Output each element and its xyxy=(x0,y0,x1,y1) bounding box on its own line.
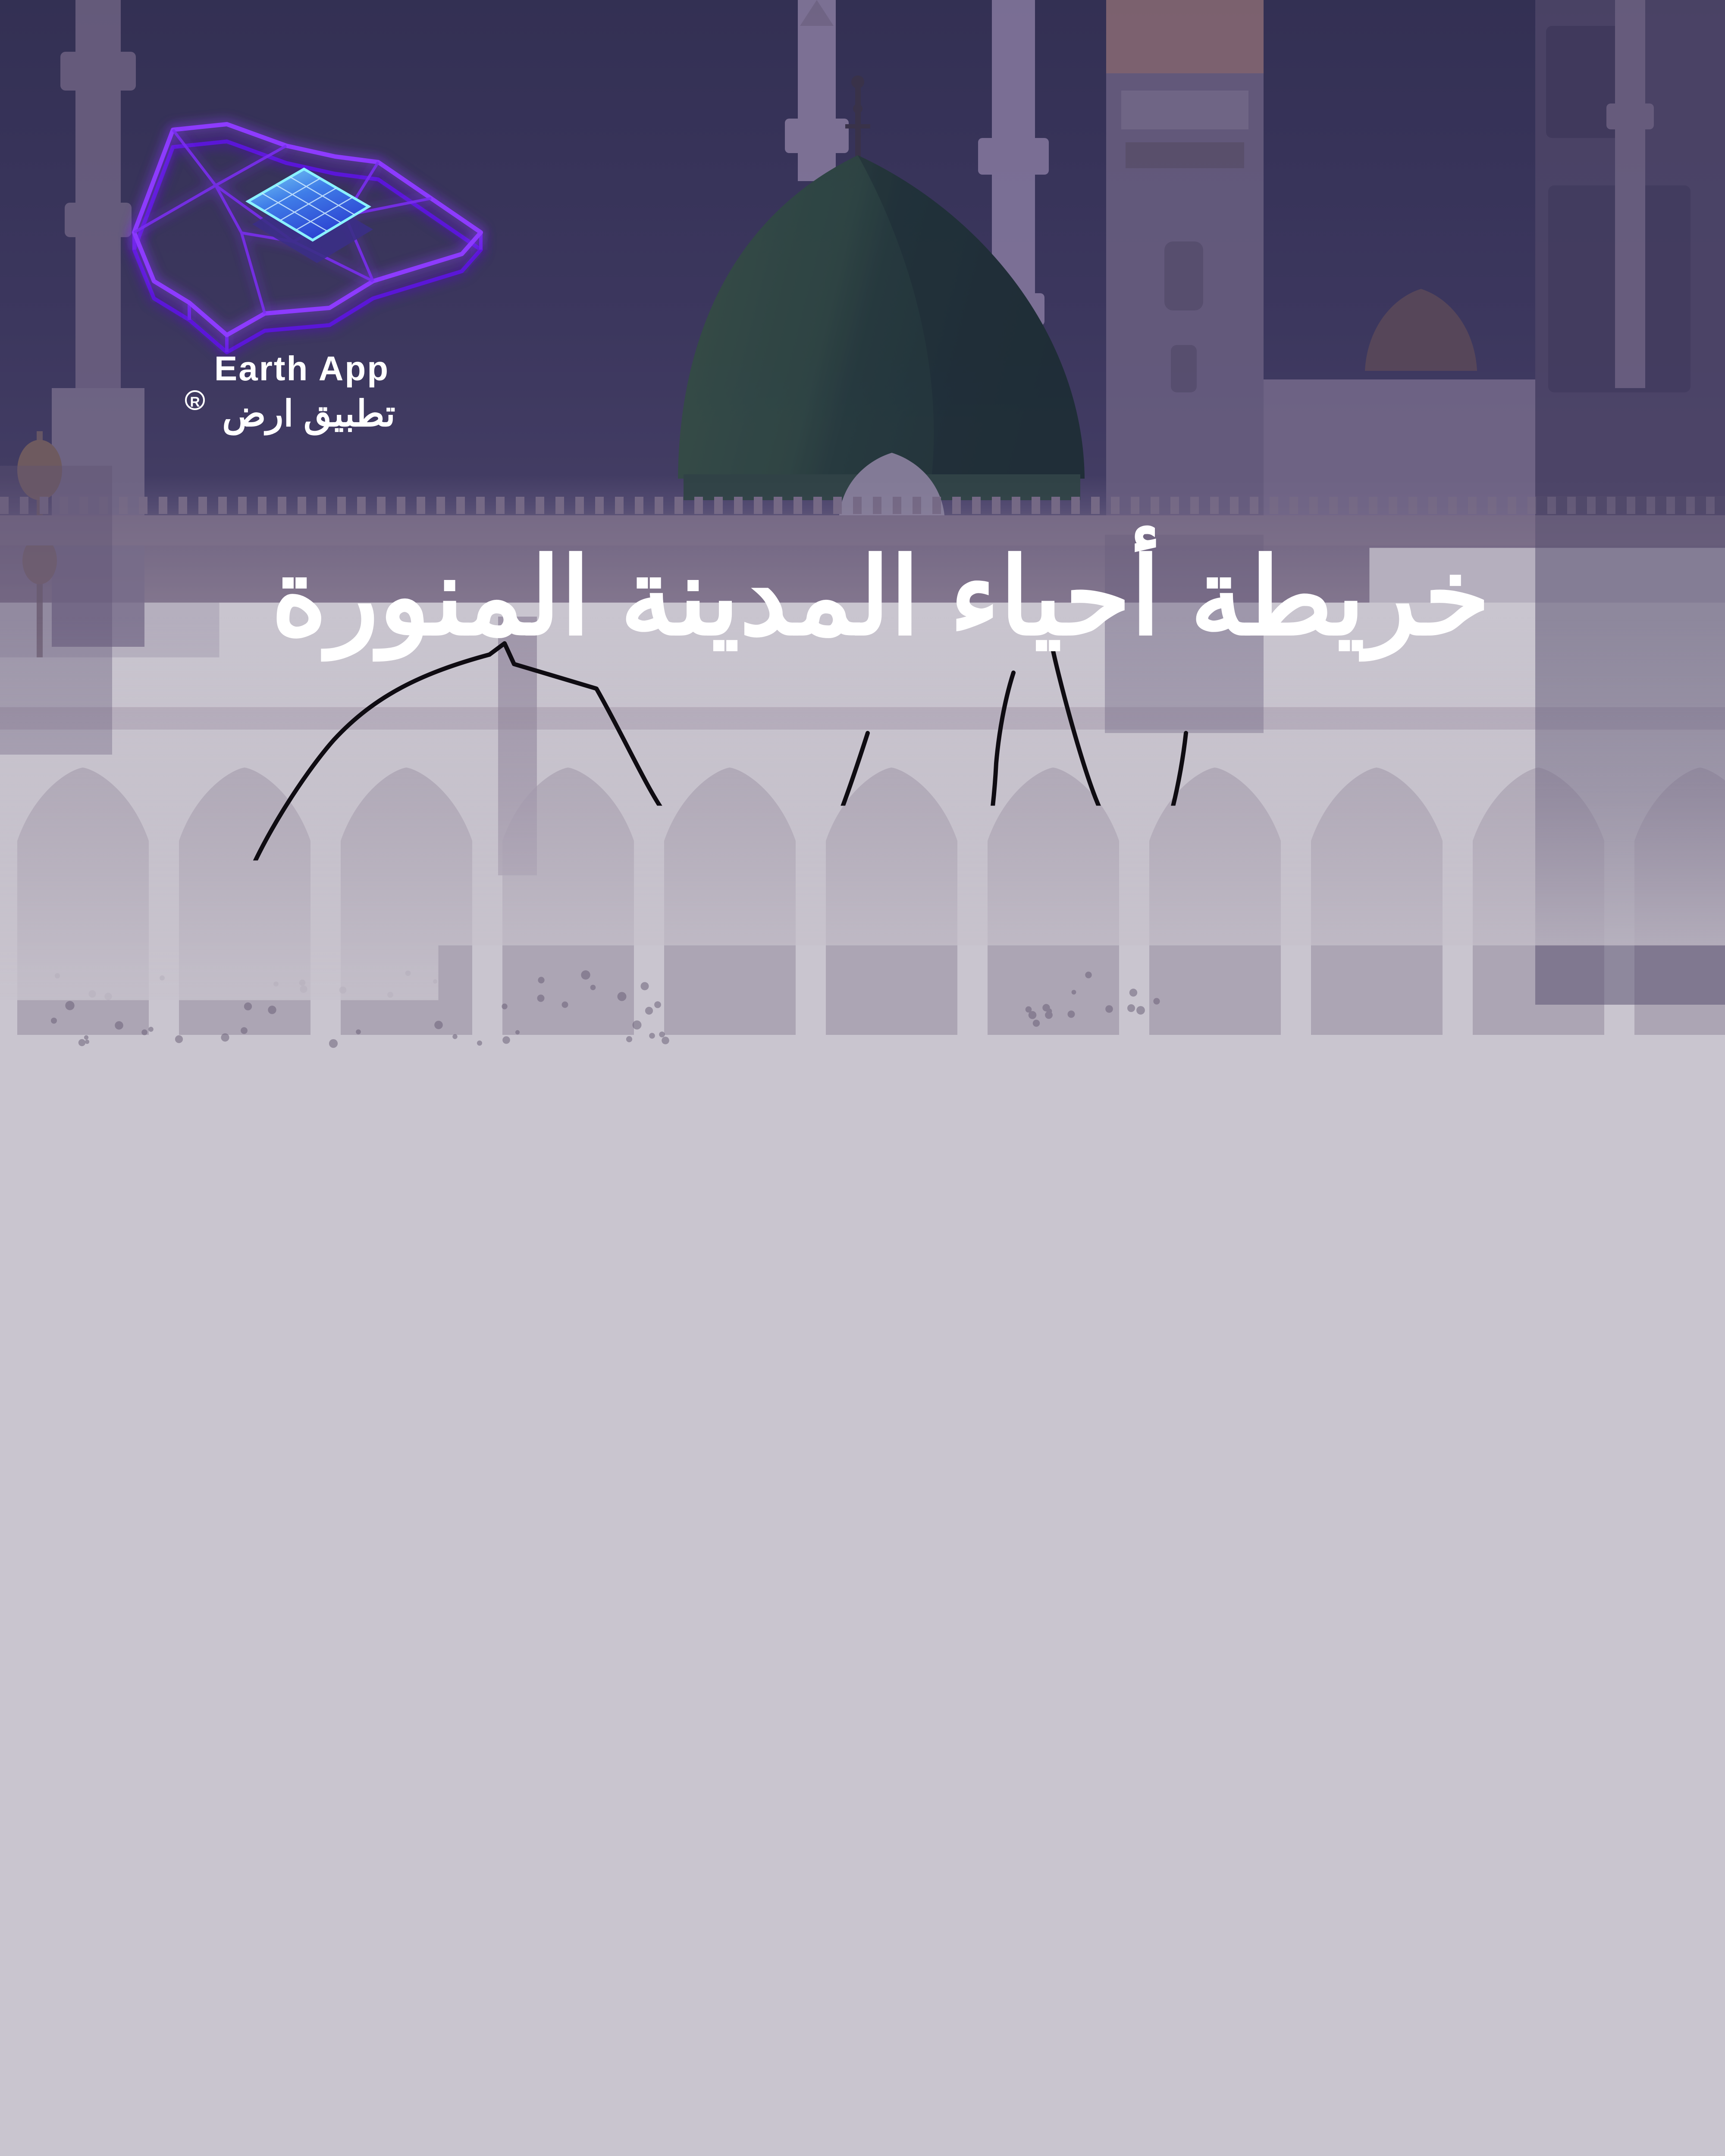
svg-text:الدرع: الدرع xyxy=(910,1296,946,1315)
svg-text:خريطة أحياء المدينة المنورة: خريطة أحياء المدينة المنورة xyxy=(271,525,1490,662)
svg-text:الغابة: الغابة xyxy=(894,1013,967,1051)
svg-text:شمال: شمال xyxy=(1465,2027,1522,2053)
svg-text:حي بضاعة: حي بضاعة xyxy=(868,1355,916,1369)
svg-text:Earth App: Earth App xyxy=(214,349,389,388)
svg-text:حي: حي xyxy=(542,1941,601,1989)
svg-text:شرق: شرق xyxy=(1604,2136,1655,2156)
svg-text:الصناعية: الصناعية xyxy=(507,2023,645,2073)
svg-text:تطبيق ارض: تطبيق ارض xyxy=(222,393,395,436)
svg-text:غرب: غرب xyxy=(1339,2136,1386,2156)
svg-text:المدينة: المدينة xyxy=(518,1981,629,2030)
svg-text:حي السيح: حي السيح xyxy=(846,1384,893,1397)
svg-text:حي النقا: حي النقا xyxy=(893,1416,925,1427)
svg-text:R: R xyxy=(190,394,200,410)
svg-text:حي: حي xyxy=(906,977,955,1017)
svg-text:حي: حي xyxy=(1006,949,1048,983)
svg-text:حي مسجد: حي مسجد xyxy=(893,1279,964,1297)
